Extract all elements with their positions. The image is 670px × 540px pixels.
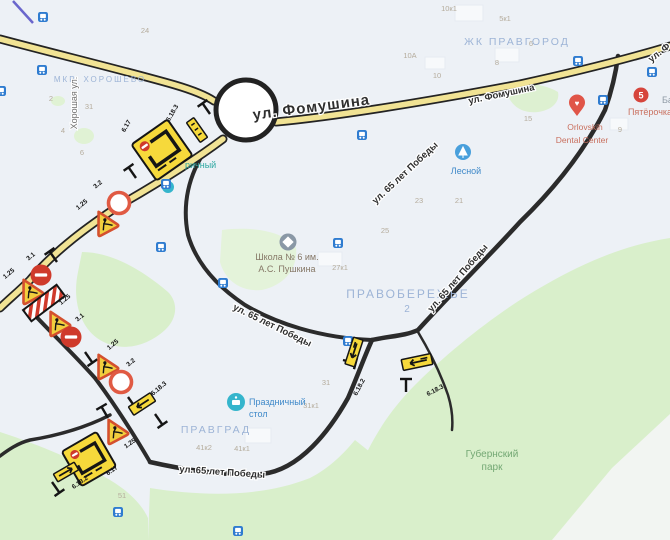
building-number: 4 [61, 126, 65, 135]
bus-stop-icon[interactable] [333, 238, 343, 248]
cake-icon-dot [235, 396, 237, 398]
bus-stop-icon[interactable] [233, 526, 243, 536]
bus-stop-icon[interactable] [218, 278, 228, 288]
district-label-pravgrad: ПРАВГРАД [181, 424, 251, 436]
building-number: 41к1 [234, 444, 250, 453]
dental-label-line1: Orlovskih [567, 122, 603, 132]
building-number: 6 [529, 39, 533, 48]
building-number: 31 [322, 378, 330, 387]
street-label-pobedy-arc: ул. 65 лет Победы [231, 302, 313, 350]
school-label-line1: Школа № 6 им. [255, 252, 318, 262]
building-number: 31 [85, 102, 93, 111]
sign-label: 3.2 [125, 357, 137, 368]
sign-label: 6.18.3 [150, 380, 169, 397]
poi-pyaterochka[interactable]: 5 Пятёрочка Ба [628, 88, 670, 118]
bus-stop-icon[interactable] [37, 65, 47, 75]
heart-icon: ♥ [575, 99, 580, 108]
park-label-line2: парк [482, 462, 504, 473]
street-label-fomushina-corner: ул. Ф [646, 41, 670, 65]
bus-stop-icon[interactable] [598, 95, 608, 105]
building-number: 15 [524, 114, 532, 123]
sign-label: 3.1 [25, 251, 37, 262]
building-number: 24 [141, 26, 149, 35]
road-65-pobedy-bottom [150, 340, 372, 474]
green-bottom-strip [148, 440, 380, 540]
sign-label: 6.17 [121, 119, 134, 134]
district-label-pravoberezhye-num: 2 [404, 304, 412, 315]
street-label-pobedy-float: ул. 65 лет Победы [370, 140, 440, 207]
sign-post [124, 164, 141, 182]
richny-partial-label: ричный [185, 160, 216, 170]
green-dot-1 [74, 128, 94, 144]
sign-detour-direction-6-18 [401, 354, 433, 371]
pyaterochka-label: Пятёрочка [628, 107, 670, 117]
sign-no-entry-3-1 [31, 265, 52, 286]
bus-stop-icon[interactable] [573, 56, 583, 66]
building-number: 27к1 [332, 263, 348, 272]
building-number: 21 [455, 196, 463, 205]
prazdnichny-label-line1: Праздничный [249, 397, 306, 407]
building-number: 6 [80, 148, 84, 157]
pyaterochka-icon-glyph: 5 [638, 91, 643, 101]
pen-mark [13, 1, 33, 23]
bus-stop-icon[interactable] [113, 507, 123, 517]
building-number: 5к1 [499, 14, 511, 23]
poi-prazdnichny-stol[interactable]: Праздничный стол [227, 393, 306, 419]
map-canvas: ЖК ПРАВГОРОД МКР. ХОРОШЕВО ПРАВОБЕРЕЖЬЕ … [0, 0, 670, 540]
bus-stop-icon[interactable] [156, 242, 166, 252]
building-number: 10А [403, 51, 416, 60]
building-number: 10к1 [441, 4, 457, 13]
sign-label: 1.25 [2, 267, 16, 281]
building-number: 51 [118, 491, 126, 500]
sign-post [150, 411, 167, 429]
sign-label: 6.18.3 [165, 103, 180, 122]
bus-stop-icon[interactable] [38, 12, 48, 22]
sign-no-entry-3-1 [61, 327, 82, 348]
ba-clipped-label: Ба [662, 95, 670, 105]
green-dot-2 [51, 96, 65, 106]
district-label-pravgorod: ЖК ПРАВГОРОД [464, 36, 570, 48]
street-label-khoroshaya: Хорошая ул. [69, 77, 79, 130]
green-blob-mid-left [76, 252, 175, 347]
bus-stop-icon[interactable] [0, 86, 6, 96]
sign-label: 1.25 [75, 198, 89, 212]
building-number: 41к2 [196, 443, 212, 452]
school-label-line2: А.С. Пушкина [258, 264, 315, 274]
park-label-line1: Губернский [466, 448, 519, 460]
sign-movement-prohibited-3-2 [109, 193, 130, 214]
scanned-traffic-scheme: ЖК ПРАВГОРОД МКР. ХОРОШЕВО ПРАВОБЕРЕЖЬЕ … [0, 0, 670, 540]
sign-detour-direction-6-18 [128, 393, 155, 416]
building-number: 23 [415, 196, 423, 205]
bus-stop-icon[interactable] [161, 179, 171, 189]
building-number: 25 [381, 226, 389, 235]
sign-label: 3.2 [92, 179, 104, 190]
building-number: 10 [433, 71, 441, 80]
bus-stop-icon[interactable] [357, 130, 367, 140]
poi-lesnoy[interactable]: Лесной [451, 144, 481, 176]
building-number: 8 [495, 58, 499, 67]
sign-movement-prohibited-3-2 [111, 372, 132, 393]
sign-detour-direction-6-18 [186, 118, 207, 143]
street-label-pobedy-bottom: ул. 65 лет Победы [179, 464, 266, 481]
district-label-khoroshevo: МКР. ХОРОШЕВО [54, 75, 146, 84]
bus-stop-icon[interactable] [647, 67, 657, 77]
cake-icon-glyph [232, 400, 240, 405]
street-label-pobedy-east: ул. 65 лет Победы [426, 242, 491, 314]
lesnoy-label: Лесной [451, 166, 481, 176]
prazdnichny-label-line2: стол [249, 409, 268, 419]
building-number: 2 [49, 94, 53, 103]
dental-label-line2: Dental Center [556, 135, 609, 145]
building-number: 9 [618, 125, 622, 134]
